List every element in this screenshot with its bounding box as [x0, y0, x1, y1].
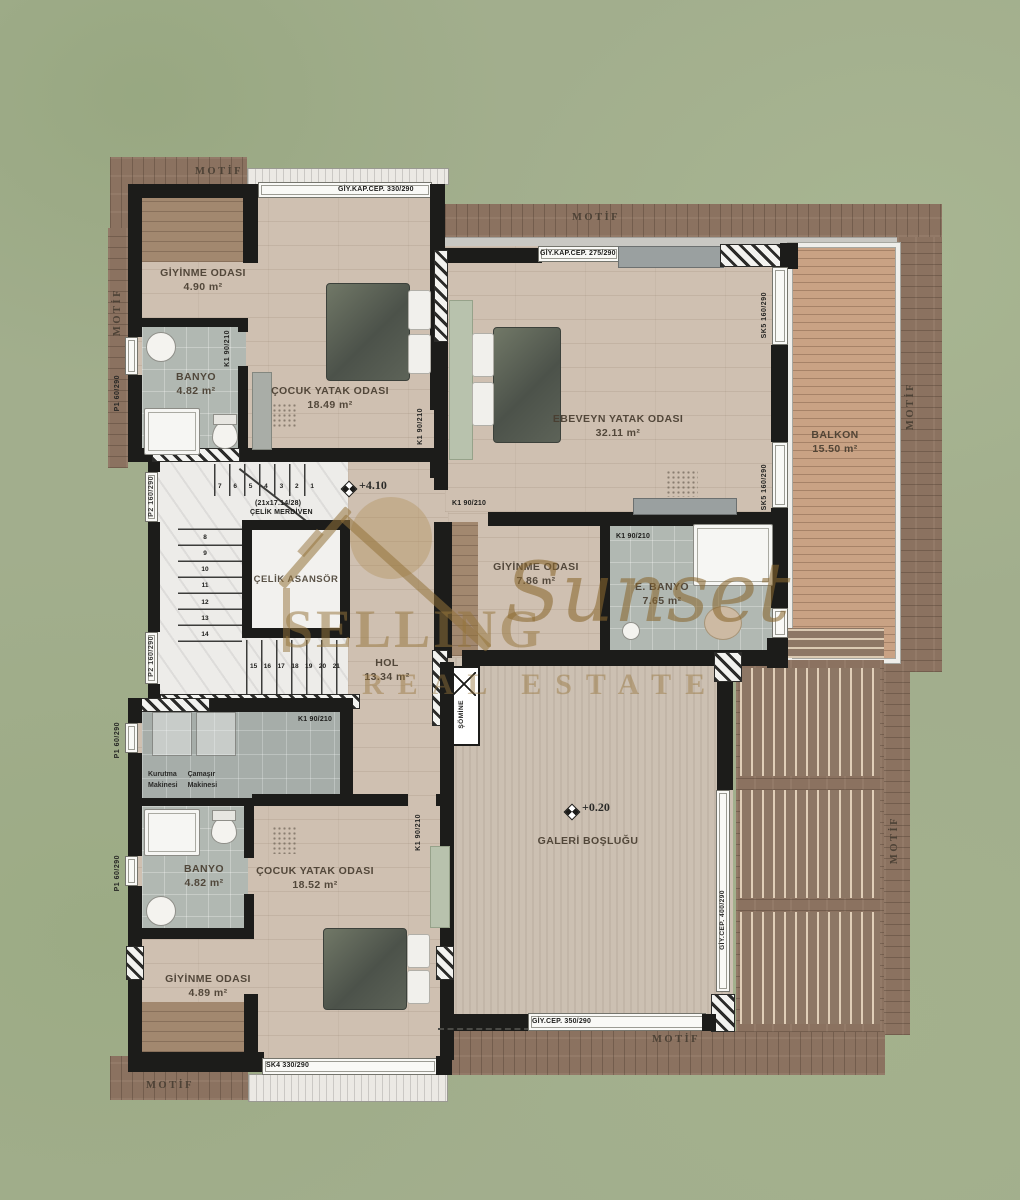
window-ebanyo: [772, 608, 788, 638]
wall: [128, 980, 142, 1056]
door-label: K1 90/210: [298, 716, 332, 723]
floor-plan: MOTİF MOTİF MOTİF MOTİF MOTİF MOTİF MOTİ…: [0, 0, 1020, 1200]
bed-master: [493, 327, 561, 443]
sink-bottom: [146, 896, 176, 926]
hatched-wall: [126, 946, 144, 980]
wall: [128, 184, 142, 337]
door-label: K1 90/210: [417, 408, 424, 445]
window-p1-laundry: [125, 723, 138, 753]
window-p1-top: [125, 337, 138, 375]
wardrobe-giyinme-bottom: [142, 1002, 244, 1052]
bed-cocuk-top: [326, 283, 410, 381]
wall-banyo-top: [140, 318, 248, 327]
wall-laundry-right: [340, 698, 353, 800]
window-label: GİY.CEP. 400/290: [719, 890, 726, 950]
wall-master-top: [445, 248, 542, 263]
wall: [436, 794, 452, 806]
window-sk5-upper: [772, 267, 788, 345]
room-label-banyo-top: BANYO4.82 m²: [176, 370, 216, 398]
hatched-wall-laundry-top: [130, 698, 210, 712]
wardrobe-giyinme-top: [142, 196, 243, 262]
wall: [210, 698, 352, 712]
pergola-slats-band1: [740, 668, 880, 776]
room-label-giyinme-mid: GİYİNME ODASI7.86 m²: [493, 560, 579, 588]
rug-ebanyo: [704, 606, 742, 640]
headboard-panel-master: [449, 300, 473, 460]
room-label-balkon: BALKON15.50 m²: [811, 428, 858, 456]
hatched-wall: [714, 652, 742, 682]
motif-label-bottom: MOTİF: [652, 1034, 700, 1045]
window-label: GİY.KAP.CEP. 275/290: [540, 250, 616, 257]
stair-dims-label: (21x17.14/28): [255, 500, 301, 507]
motif-label-right-upper: MOTİF: [905, 382, 916, 430]
door-label: K1 90/210: [452, 500, 486, 507]
wall: [436, 1056, 452, 1075]
window-p1-banyo: [125, 856, 138, 886]
wall-giyinme-mid-left: [434, 522, 452, 658]
dryer-machine: [152, 712, 192, 756]
elevator-label: ÇELİK ASANSÖR: [254, 574, 339, 585]
wall: [128, 886, 142, 946]
pergola-step: [786, 628, 884, 658]
shower-tray-bottom: [144, 809, 200, 856]
pillow: [408, 290, 431, 330]
wall: [238, 318, 248, 332]
rug-cocuk-bottom: [272, 826, 298, 854]
wood-strip-top-right: [445, 204, 942, 237]
motif-label-top-left: MOTİF: [195, 166, 243, 177]
hatched-wall: [436, 946, 454, 980]
pillow: [472, 382, 494, 426]
bed-cocuk-bottom: [323, 928, 407, 1010]
elevator: ÇELİK ASANSÖR: [242, 520, 350, 638]
bench-cocuk-top: [252, 372, 272, 450]
toilet-bottom: [211, 810, 235, 845]
level-upper: +4.10: [359, 478, 387, 493]
shower-tray: [144, 408, 200, 455]
level-lower: +0.20: [582, 800, 610, 815]
hatched-wall-master-left: [434, 250, 448, 342]
window-label: SK4 330/290: [266, 1062, 309, 1069]
motif-label-left: MOTİF: [112, 288, 123, 336]
fireplace-label: ŞÖMİNE: [458, 700, 465, 729]
fireplace-x-icon: [452, 672, 476, 696]
wall: [771, 345, 788, 442]
wall-stair-left: [148, 462, 160, 472]
stair-numbers-side: 891011121314: [199, 534, 211, 638]
wood-strip-right-upper: [897, 237, 942, 672]
window-label: SK5 160/290: [761, 292, 768, 338]
door-label: K1 90/210: [224, 330, 231, 367]
wall-bottom-left: [128, 1052, 264, 1072]
wall: [434, 342, 448, 490]
sink-ebanyo: [622, 622, 640, 640]
pillow: [407, 934, 430, 968]
toilet: [212, 414, 236, 450]
wall: [771, 508, 788, 608]
pillow: [407, 970, 430, 1004]
dashed-line: [438, 1028, 530, 1030]
wall: [128, 698, 142, 723]
room-label-cocuk-bottom: ÇOCUK YATAK ODASI18.52 m²: [256, 864, 374, 892]
wall-cocuk2-top: [252, 794, 408, 806]
rug-cocuk-bottom-side: [430, 846, 450, 928]
window-label: P1 60/290: [114, 855, 121, 891]
window-label: SK5 160/290: [761, 464, 768, 510]
wall-giyinme-ebanyo: [600, 518, 610, 658]
wall: [702, 1014, 716, 1031]
door-label: K1 90/210: [616, 533, 650, 540]
wall-giyinme3-top: [142, 928, 254, 939]
room-label-giyinme-bottom: GİYİNME ODASI4.89 m²: [165, 972, 251, 1000]
wall-giyinme-divider: [243, 184, 258, 263]
sink: [146, 332, 176, 362]
pillow: [472, 333, 494, 377]
window-label: P2 160/290: [148, 476, 155, 517]
room-label-ebanyo: E. BANYO7.65 m²: [635, 580, 689, 608]
wall: [238, 366, 248, 460]
deck-strip-bottom-left: [248, 1074, 448, 1102]
stair-numbers-top: 7654321: [218, 483, 314, 490]
wardrobe-master: [618, 246, 724, 268]
room-label-ebeveyn: EBEVEYN YATAK ODASI32.11 m²: [553, 412, 683, 440]
pergola-slats-band2: [740, 790, 880, 898]
laundry-labels: KurutmaMakinesi ÇamaşırMakinesi: [148, 770, 217, 791]
wardrobe-hall: [633, 498, 737, 515]
window-label: P1 60/290: [114, 375, 121, 411]
hatched-wall: [720, 244, 784, 267]
wall-giyinme3-right: [244, 994, 258, 1060]
window-label: GİY.CEP. 350/290: [532, 1018, 591, 1025]
room-label-hol: HOL13.34 m²: [364, 656, 409, 684]
window-label: GİY.KAP.CEP. 330/290: [338, 186, 414, 193]
wall: [128, 184, 260, 198]
room-label-galeri: GALERİ BOŞLUĞU: [538, 834, 639, 848]
motif-label-right-lower: MOTİF: [889, 816, 900, 864]
window-label: P1 60/290: [114, 722, 121, 758]
door-label: K1 90/210: [415, 814, 422, 851]
rug-master: [666, 470, 698, 497]
shower-ebanyo: [693, 524, 773, 586]
motif-label-top-right: MOTİF: [572, 212, 620, 223]
wall: [244, 806, 254, 858]
pillow: [408, 334, 431, 374]
window-sk5-lower: [772, 442, 788, 508]
wardrobe-giyinme-mid: [452, 522, 478, 656]
room-label-giyinme-top: GİYİNME ODASI4.90 m²: [160, 266, 246, 294]
wall: [148, 522, 160, 632]
wall: [128, 753, 142, 856]
washing-machine: [196, 712, 236, 756]
stair-numbers-bottom: 15161718192021: [250, 663, 340, 670]
wall: [780, 243, 798, 269]
stair-label: ÇELİK MERDİVEN: [250, 509, 313, 516]
pergola-slats-band3: [740, 912, 880, 1024]
motif-label-bottom-left: MOTİF: [146, 1080, 194, 1091]
room-label-banyo-bottom: BANYO4.82 m²: [184, 862, 224, 890]
room-label-cocuk-top: ÇOCUK YATAK ODASI18.49 m²: [271, 384, 389, 412]
window-label: P2 160/290: [148, 636, 155, 677]
